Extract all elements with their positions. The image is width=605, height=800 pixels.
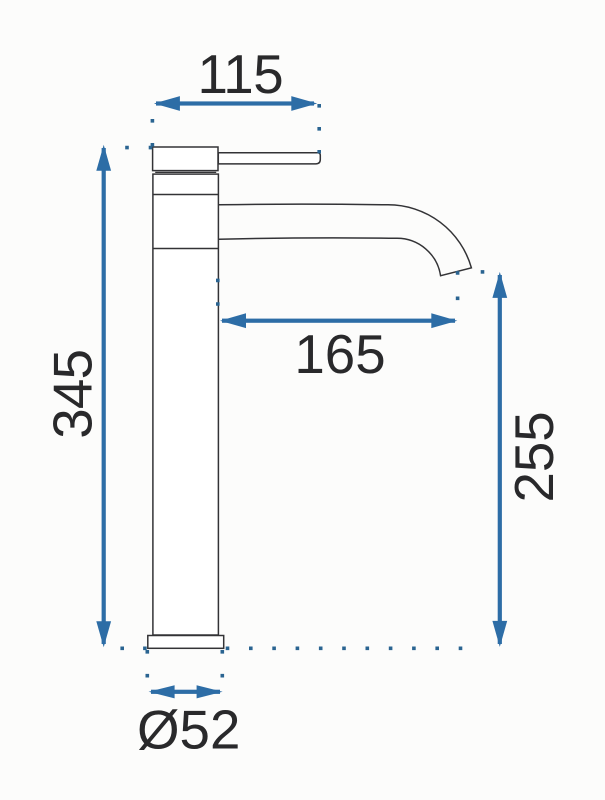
svg-text:Ø52: Ø52	[137, 699, 240, 761]
svg-text:165: 165	[294, 323, 385, 385]
svg-text:345: 345	[42, 350, 104, 439]
svg-text:255: 255	[503, 411, 565, 502]
svg-text:115: 115	[197, 43, 283, 105]
